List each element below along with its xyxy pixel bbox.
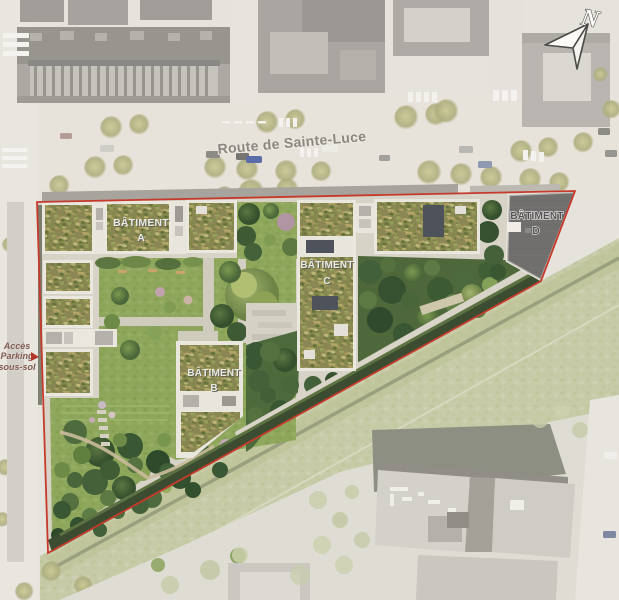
svg-text:BÂTIMENT: BÂTIMENT xyxy=(510,209,563,222)
svg-text:C: C xyxy=(323,276,330,287)
svg-text:Parking: Parking xyxy=(0,351,34,361)
svg-text:BÂTIMENT: BÂTIMENT xyxy=(187,366,240,379)
svg-text:Accès: Accès xyxy=(3,341,31,351)
svg-text:BÂTIMENT: BÂTIMENT xyxy=(300,258,353,271)
svg-text:B: B xyxy=(210,383,217,394)
svg-text:sous-sol: sous-sol xyxy=(0,362,36,372)
svg-text:BÂTIMENT: BÂTIMENT xyxy=(113,216,169,229)
svg-text:A: A xyxy=(137,232,145,244)
svg-text:D: D xyxy=(532,226,539,237)
